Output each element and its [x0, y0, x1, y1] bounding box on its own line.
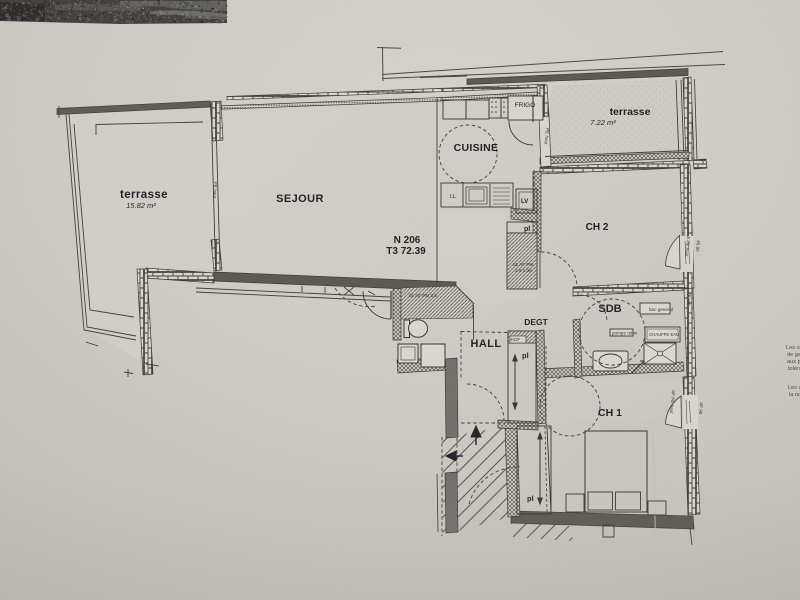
svg-text:pompe relev: pompe relev: [612, 331, 638, 336]
svg-text:SEJOUR: SEJOUR: [276, 193, 324, 205]
svg-text:3.9 1.39: 3.9 1.39: [515, 268, 532, 273]
svg-text:pl: pl: [522, 351, 529, 360]
svg-text:01 AF PM: 01 AF PM: [513, 262, 533, 267]
svg-text:bac general: bac general: [649, 307, 673, 312]
svg-text:FRIGO: FRIGO: [515, 102, 536, 109]
svg-text:terrasse: terrasse: [610, 106, 651, 118]
svg-text:01 AF PM 3.9: 01 AF PM 3.9: [409, 293, 437, 298]
svg-text:LV: LV: [521, 199, 528, 205]
svg-text:aux plans: aux plans: [787, 359, 800, 365]
svg-text:pl: pl: [524, 226, 530, 233]
svg-text:7.22 m²: 7.22 m²: [590, 118, 616, 127]
svg-text:LL: LL: [450, 194, 456, 200]
svg-text:CH 1: CH 1: [598, 407, 622, 419]
svg-text:SDB: SDB: [598, 303, 621, 315]
svg-text:N 206: N 206: [394, 235, 421, 246]
svg-text:de garde: de garde: [787, 352, 800, 358]
svg-text:15.82 m²: 15.82 m²: [126, 201, 156, 210]
svg-text:CH 2: CH 2: [586, 222, 609, 233]
svg-text:tolérance: tolérance: [788, 366, 800, 372]
svg-text:CHAUFFE EAU: CHAUFFE EAU: [649, 332, 679, 337]
svg-text:T3 72.39: T3 72.39: [386, 246, 426, 257]
svg-text:HALL: HALL: [471, 338, 502, 350]
svg-text:la notice: la notice: [789, 392, 800, 398]
svg-text:CUISINE: CUISINE: [454, 142, 499, 154]
svg-text:KDF: KDF: [511, 337, 520, 342]
svg-text:Les cotes: Les cotes: [786, 345, 800, 351]
svg-text:terrasse: terrasse: [120, 189, 168, 201]
svg-text:DEGT: DEGT: [524, 317, 548, 327]
svg-text:FE haut: FE haut: [212, 182, 218, 199]
svg-text:Les surfa: Les surfa: [788, 385, 800, 391]
